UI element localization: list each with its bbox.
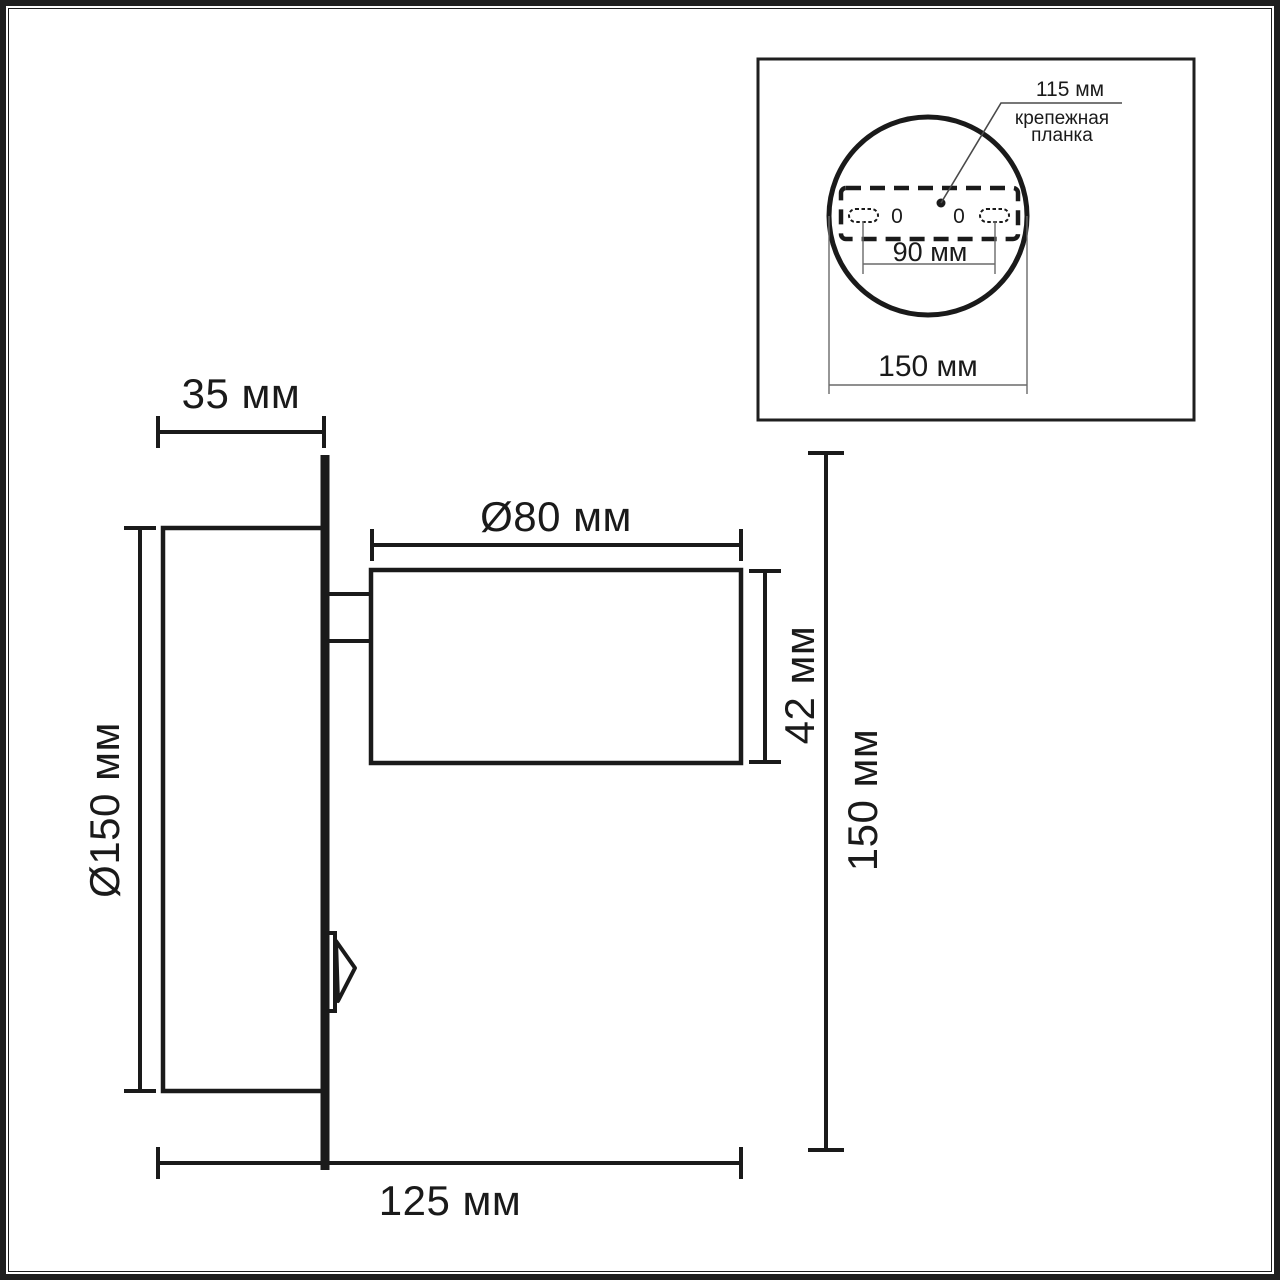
label-115mm: 115 мм	[1036, 78, 1104, 101]
hole-mark-left: 0	[891, 205, 903, 228]
switch-base	[326, 933, 335, 1011]
label-150mm-height: 150 мм	[839, 729, 886, 872]
mounting-slot-left	[849, 209, 878, 222]
backplate-circle	[829, 117, 1027, 315]
switch-toggle-lever	[336, 941, 355, 1001]
mounting-slot-right	[980, 209, 1009, 222]
dimension-150mm-base	[124, 528, 156, 1091]
spot-cylinder-outline	[371, 570, 741, 763]
inset-backplate-view: 0 0 115 мм крепежная планка 90 мм 15	[758, 59, 1194, 420]
label-42mm: 42 мм	[776, 626, 823, 745]
label-125mm: 125 мм	[379, 1177, 522, 1224]
technical-drawing-page: 35 мм Ø80 мм Ø150 мм 42 мм 150 мм 125 мм…	[0, 0, 1280, 1280]
lamp-base-outline	[163, 528, 327, 1091]
dimension-125mm	[158, 1147, 741, 1179]
dimension-35mm	[158, 416, 324, 448]
mounting-plate-dashed-outline	[841, 188, 1018, 239]
hole-mark-right: 0	[953, 205, 965, 228]
label-90mm: 90 мм	[893, 237, 968, 267]
label-35mm: 35 мм	[182, 370, 301, 417]
label-80mm: Ø80 мм	[480, 493, 632, 540]
label-mounting-plate-line2: планка	[1031, 125, 1093, 146]
lamp-dimension-diagram: 35 мм Ø80 мм Ø150 мм 42 мм 150 мм 125 мм…	[0, 0, 1280, 1280]
label-150mm-inset: 150 мм	[878, 350, 978, 383]
label-150mm-base: Ø150 мм	[81, 722, 128, 898]
